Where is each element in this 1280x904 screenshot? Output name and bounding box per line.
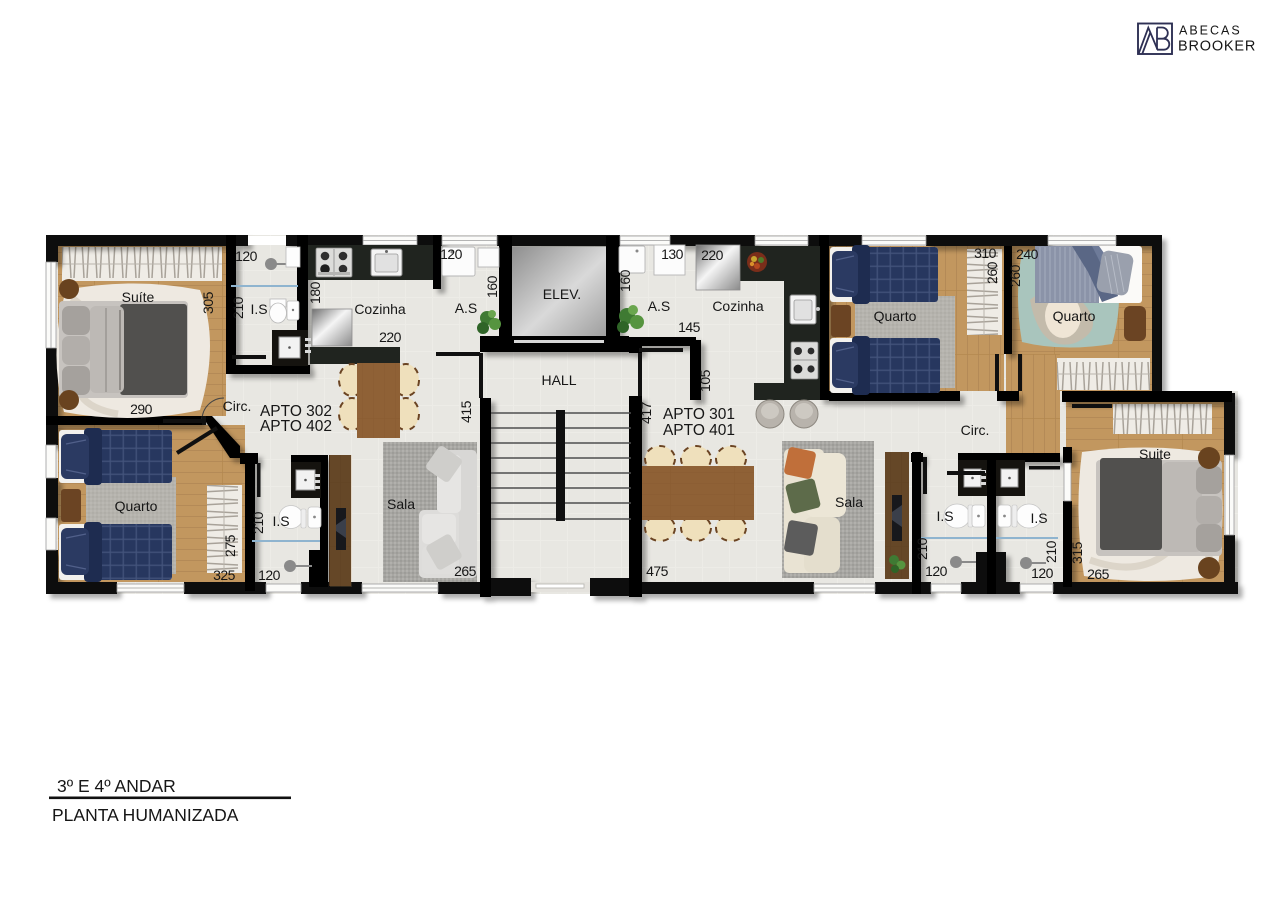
svg-text:Circ.: Circ.	[223, 398, 252, 414]
svg-text:ELEV.: ELEV.	[543, 286, 581, 302]
svg-text:105: 105	[697, 369, 713, 392]
svg-text:Cozinha: Cozinha	[354, 301, 406, 317]
svg-text:Cozinha: Cozinha	[712, 298, 764, 314]
svg-text:3º E 4º ANDAR: 3º E 4º ANDAR	[57, 776, 176, 796]
svg-text:265: 265	[454, 563, 477, 579]
svg-text:240: 240	[1016, 246, 1039, 262]
svg-text:415: 415	[458, 400, 474, 423]
svg-text:A.S: A.S	[455, 300, 478, 316]
svg-text:145: 145	[678, 319, 701, 335]
svg-text:417: 417	[638, 401, 654, 424]
svg-text:BROOKER: BROOKER	[1178, 39, 1256, 55]
svg-text:220: 220	[701, 247, 724, 263]
svg-text:210: 210	[1043, 540, 1059, 563]
svg-text:Suíte: Suíte	[122, 289, 155, 305]
svg-text:290: 290	[130, 401, 153, 417]
svg-text:475: 475	[646, 563, 669, 579]
svg-text:260: 260	[984, 261, 1000, 284]
svg-text:APTO 301: APTO 301	[663, 406, 735, 423]
svg-text:Quarto: Quarto	[1053, 308, 1096, 324]
svg-text:Suite: Suite	[1139, 446, 1171, 462]
svg-text:Quarto: Quarto	[115, 498, 158, 514]
svg-text:160: 160	[484, 275, 500, 298]
svg-text:120: 120	[235, 248, 258, 264]
svg-text:315: 315	[1069, 541, 1085, 564]
svg-text:ABECAS: ABECAS	[1179, 24, 1242, 38]
svg-text:220: 220	[379, 329, 402, 345]
svg-text:210: 210	[230, 296, 246, 319]
svg-text:325: 325	[213, 567, 236, 583]
svg-text:Quarto: Quarto	[874, 308, 917, 324]
svg-text:310: 310	[974, 245, 997, 261]
svg-text:PLANTA HUMANIZADA: PLANTA HUMANIZADA	[52, 805, 239, 825]
svg-text:275: 275	[222, 534, 238, 557]
svg-text:210: 210	[914, 537, 930, 560]
svg-text:160: 160	[617, 269, 633, 292]
svg-text:I.S: I.S	[936, 508, 953, 524]
svg-text:Sala: Sala	[835, 494, 863, 510]
svg-text:Sala: Sala	[387, 496, 415, 512]
svg-text:I.S: I.S	[1030, 510, 1047, 526]
svg-text:HALL: HALL	[541, 372, 576, 388]
svg-text:I.S: I.S	[250, 301, 267, 317]
svg-text:120: 120	[440, 246, 463, 262]
svg-text:265: 265	[1087, 566, 1110, 582]
svg-text:130: 130	[661, 246, 684, 262]
svg-text:APTO 401: APTO 401	[663, 422, 735, 439]
svg-text:120: 120	[258, 567, 281, 583]
svg-text:Circ.: Circ.	[961, 422, 990, 438]
svg-text:A.S: A.S	[648, 298, 671, 314]
svg-text:180: 180	[307, 281, 323, 304]
svg-text:120: 120	[925, 563, 948, 579]
svg-text:260: 260	[1007, 264, 1023, 287]
svg-text:APTO 402: APTO 402	[260, 418, 332, 435]
svg-text:120: 120	[1031, 565, 1054, 581]
svg-text:305: 305	[200, 291, 216, 314]
svg-text:210: 210	[250, 511, 266, 534]
svg-text:I.S: I.S	[272, 513, 289, 529]
